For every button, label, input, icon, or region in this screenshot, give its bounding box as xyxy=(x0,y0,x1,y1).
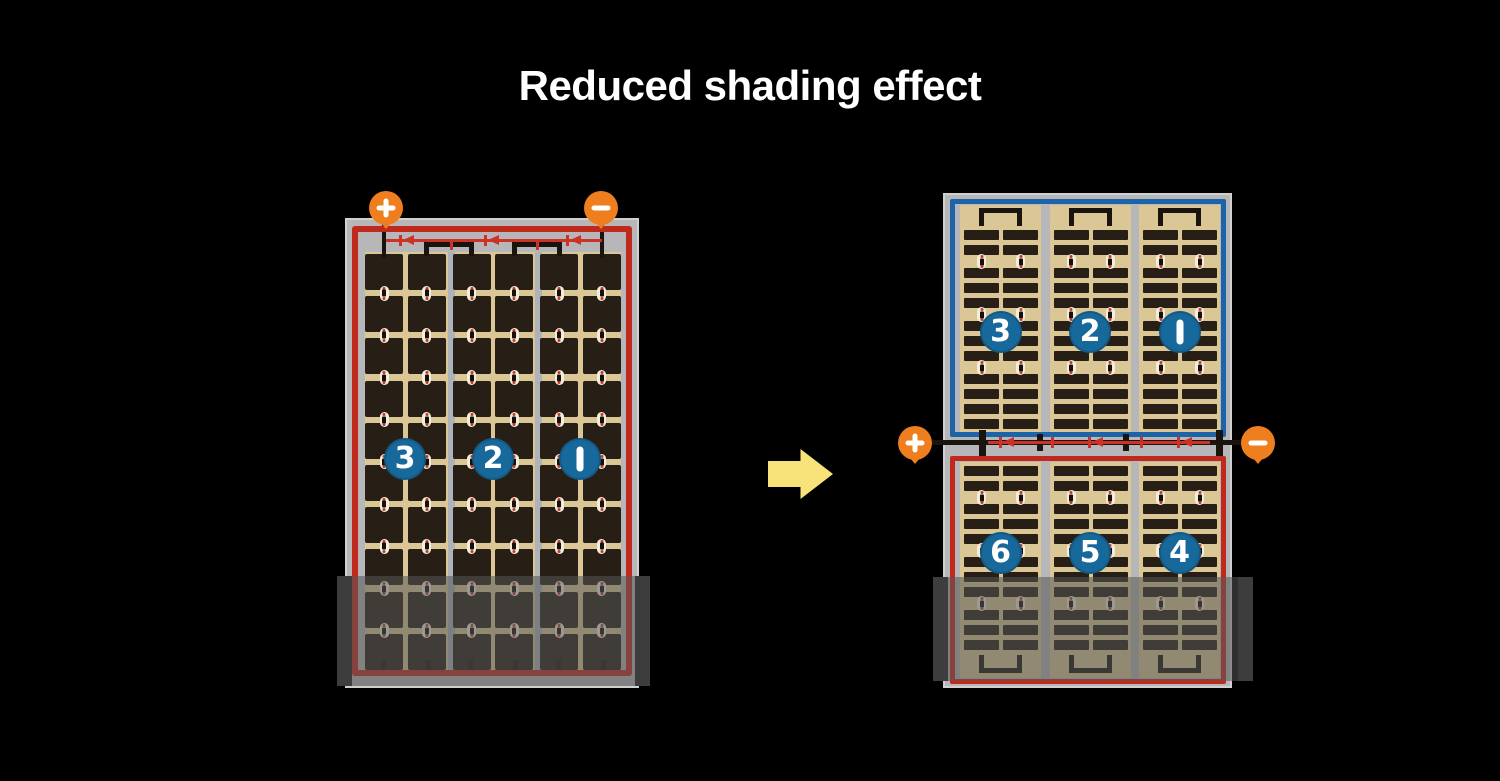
minus-terminal-icon xyxy=(1241,426,1275,460)
diagram-title: Reduced shading effect xyxy=(0,62,1500,110)
string-number-badge xyxy=(559,438,601,480)
transition-arrow-icon xyxy=(768,449,833,499)
bypass-diode-icon xyxy=(566,235,569,246)
string-number-badge: 2 xyxy=(472,438,514,480)
diode-tap xyxy=(450,239,453,250)
junction-bar xyxy=(979,430,986,456)
bypass-diode-icon xyxy=(488,235,499,245)
diode-tap xyxy=(1051,437,1054,448)
diagram-canvas: Reduced shading effect 3232654 xyxy=(0,0,1500,781)
diode-tap xyxy=(1140,437,1143,448)
bypass-diode-icon xyxy=(403,235,414,245)
shading-bar-end xyxy=(635,576,650,686)
minus-terminal-icon xyxy=(584,191,618,225)
shading-bar-end xyxy=(933,577,948,681)
bypass-diode-icon xyxy=(999,437,1002,448)
bypass-diode-icon xyxy=(1177,437,1180,448)
shading-bar-end xyxy=(1238,577,1253,681)
string-number-badge: 2 xyxy=(1069,311,1111,353)
string-number-badge: 3 xyxy=(980,311,1022,353)
string-number-badge xyxy=(1159,311,1201,353)
bypass-diode-icon xyxy=(484,235,487,246)
bypass-diode-icon xyxy=(570,235,581,245)
bypass-diode-icon xyxy=(1088,437,1091,448)
bypass-diode-icon xyxy=(399,235,402,246)
junction-bar xyxy=(1216,430,1223,456)
string-number-badge: 3 xyxy=(384,438,426,480)
string-number-badge: 6 xyxy=(980,532,1022,574)
bypass-diode-icon xyxy=(1181,437,1192,447)
shading-overlay xyxy=(933,577,1253,681)
bypass-diode-icon xyxy=(1092,437,1103,447)
shading-bar-end xyxy=(337,576,352,686)
plus-terminal-icon xyxy=(898,426,932,460)
diode-tap xyxy=(536,239,539,250)
plus-terminal-icon xyxy=(369,191,403,225)
shading-overlay xyxy=(337,576,650,686)
bypass-diode-icon xyxy=(1003,437,1014,447)
string-number-badge: 5 xyxy=(1069,532,1111,574)
string-number-badge: 4 xyxy=(1159,532,1201,574)
